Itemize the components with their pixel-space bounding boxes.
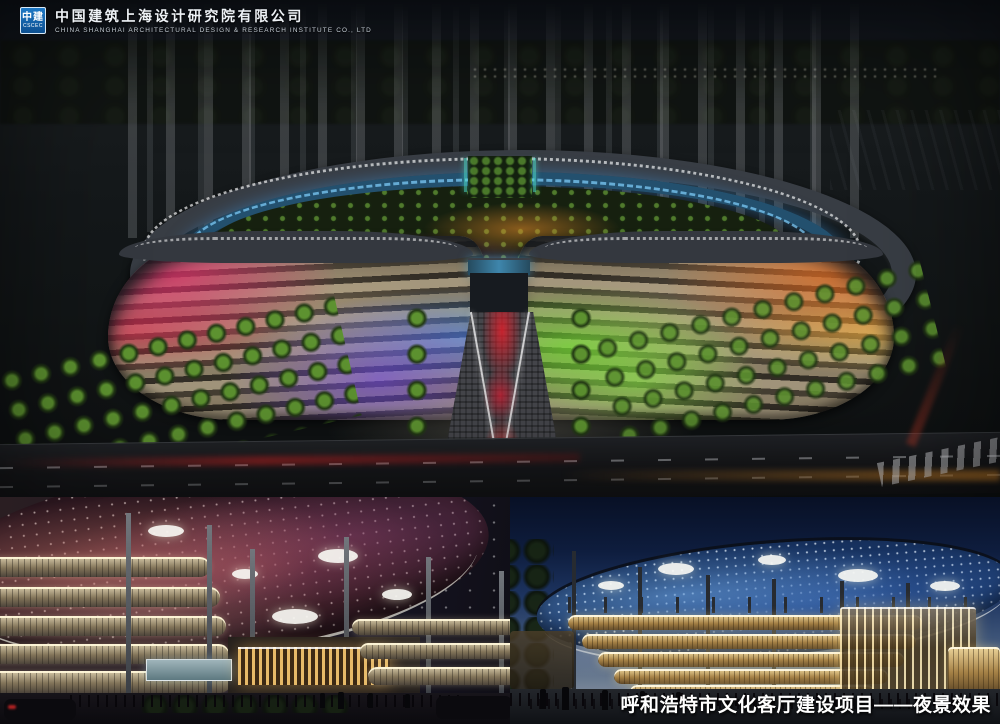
facade-band: [352, 619, 510, 635]
render-aerial-night: 中建 CSCEC 中国建筑上海设计研究院有限公司 CHINA SHANGHAI …: [0, 0, 1000, 497]
cscec-logo-icon: 中建 CSCEC: [20, 7, 46, 34]
crowd-silhouettes: [70, 695, 460, 707]
canopy-column: [126, 513, 131, 695]
company-logo: 中建 CSCEC 中国建筑上海设计研究院有限公司 CHINA SHANGHAI …: [20, 6, 372, 34]
company-name-zh: 中国建筑上海设计研究院有限公司: [55, 6, 372, 26]
person-silhouette: [540, 689, 546, 709]
person-silhouette: [338, 692, 344, 709]
presentation-board: 中建 CSCEC 中国建筑上海设计研究院有限公司 CHINA SHANGHAI …: [0, 0, 1000, 724]
canopy-light: [930, 581, 960, 591]
facade-band: [0, 557, 210, 577]
render-blue-dome-evening: 呼和浩特市文化客厅建设项目——夜景效果: [510, 497, 1000, 724]
company-name-en: CHINA SHANGHAI ARCHITECTURAL DESIGN & RE…: [55, 27, 372, 34]
car-silhouette: [436, 696, 510, 719]
canopy-light: [658, 563, 694, 575]
person-silhouette: [320, 693, 325, 708]
canopy-light: [758, 555, 786, 565]
logo-mark-en: CSCEC: [23, 23, 43, 29]
canopy-light: [598, 581, 624, 590]
canopy-light: [382, 589, 412, 600]
canopy-light: [318, 549, 358, 563]
west-annex: [510, 631, 574, 689]
project-caption: 呼和浩特市文化客厅建设项目——夜景效果: [620, 690, 991, 717]
render-canopy-nebula: [0, 497, 510, 724]
vignette: [0, 0, 1000, 497]
person-silhouette: [368, 693, 373, 708]
facade-band: [368, 667, 510, 685]
east-annex: [948, 647, 1000, 693]
media-screen-glass: [146, 659, 232, 681]
canopy-light: [272, 609, 318, 624]
person-silhouette: [562, 687, 569, 710]
car-taillight: [8, 705, 16, 709]
facade-band: [0, 587, 220, 607]
facade-band: [0, 616, 226, 636]
facade-band: [360, 643, 510, 659]
canopy-light: [148, 525, 184, 537]
company-name: 中国建筑上海设计研究院有限公司 CHINA SHANGHAI ARCHITECT…: [55, 6, 372, 34]
person-silhouette: [602, 690, 608, 710]
logo-mark-zh: 中建: [22, 12, 44, 23]
canopy-light: [838, 569, 878, 582]
person-silhouette: [405, 694, 410, 708]
car-silhouette: [4, 699, 76, 720]
